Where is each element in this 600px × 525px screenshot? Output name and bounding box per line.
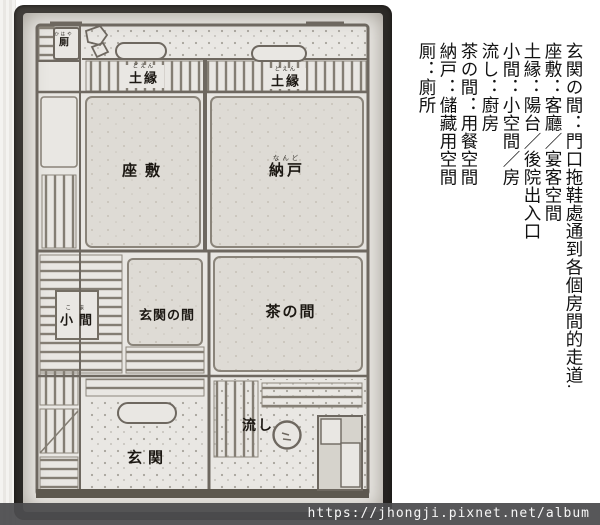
room-name-nagashi: 流し [242,419,274,434]
page: かはや 厠 どえん 土縁 どえん 土縁 座敷 なんど 納戸 こま 小間 玄関の間… [0,0,600,525]
room-label-doen-left: どえん 土縁 [129,64,159,84]
room-name-zashiki: 座敷 [122,164,168,180]
door-step-top-right [252,46,306,61]
room-label-nando: なんど 納戸 [269,156,305,179]
room-label-kawaya: かはや 厠 [54,32,73,48]
room-label-cha-no-ma: 茶の間 [265,306,316,321]
room-label-genkan: 玄関 [127,452,169,467]
legend-column-zashiki: 座敷：客廳／宴客空間 [542,42,563,504]
watermark-bar: https://jhongji.pixnet.net/album [0,503,600,525]
legend-column-koma: 小間：小空間／房 [500,42,521,504]
legend-column-doen: 土縁：陽台／後院出入口 [521,42,542,504]
door-step-top-left [116,43,166,59]
kitchen-counter [318,416,362,490]
room-name-doen-left: 土縁 [129,70,159,85]
room-name-genkan-no-ma: 玄関の間 [139,308,195,323]
room-name-genkan: 玄関 [127,451,169,467]
room-label-genkan-no-ma: 玄関の間 [139,309,195,322]
room-name-nando: 納戸 [269,162,305,178]
room-label-nagashi: 流し [242,420,274,434]
legend-column-cha-no-ma: 茶の間：用餐空間 [458,42,479,504]
watermark-url-text: https://jhongji.pixnet.net/album [308,506,590,521]
room-name-kawaya: 厠 [59,37,69,48]
door-step-genkan [118,403,176,423]
room-name-doen-right: 土縁 [271,73,301,88]
room-label-zashiki: 座敷 [122,165,168,180]
legend-column-genkan-no-ma: 玄関の間：門口拖鞋處通到各個房間的走道. [563,42,584,504]
legend-column-nagashi: 流し：廚房 [479,42,500,504]
room-label-koma: こま 小間 [60,306,98,326]
floorplan-drawing [24,15,381,509]
legend-annotations: 玄関の間：門口拖鞋處通到各個房間的走道. 座敷：客廳／宴客空間 土縁：陽台／後院… [400,42,584,504]
room-label-doen-right: どえん 土縁 [271,67,301,87]
room-name-koma: 小間 [60,312,98,327]
legend-column-nando: 納戸：儲藏用空間 [437,42,458,504]
room-name-cha-no-ma: 茶の間 [265,305,316,321]
legend-column-kawaya: 厠：廁所 [416,42,437,504]
